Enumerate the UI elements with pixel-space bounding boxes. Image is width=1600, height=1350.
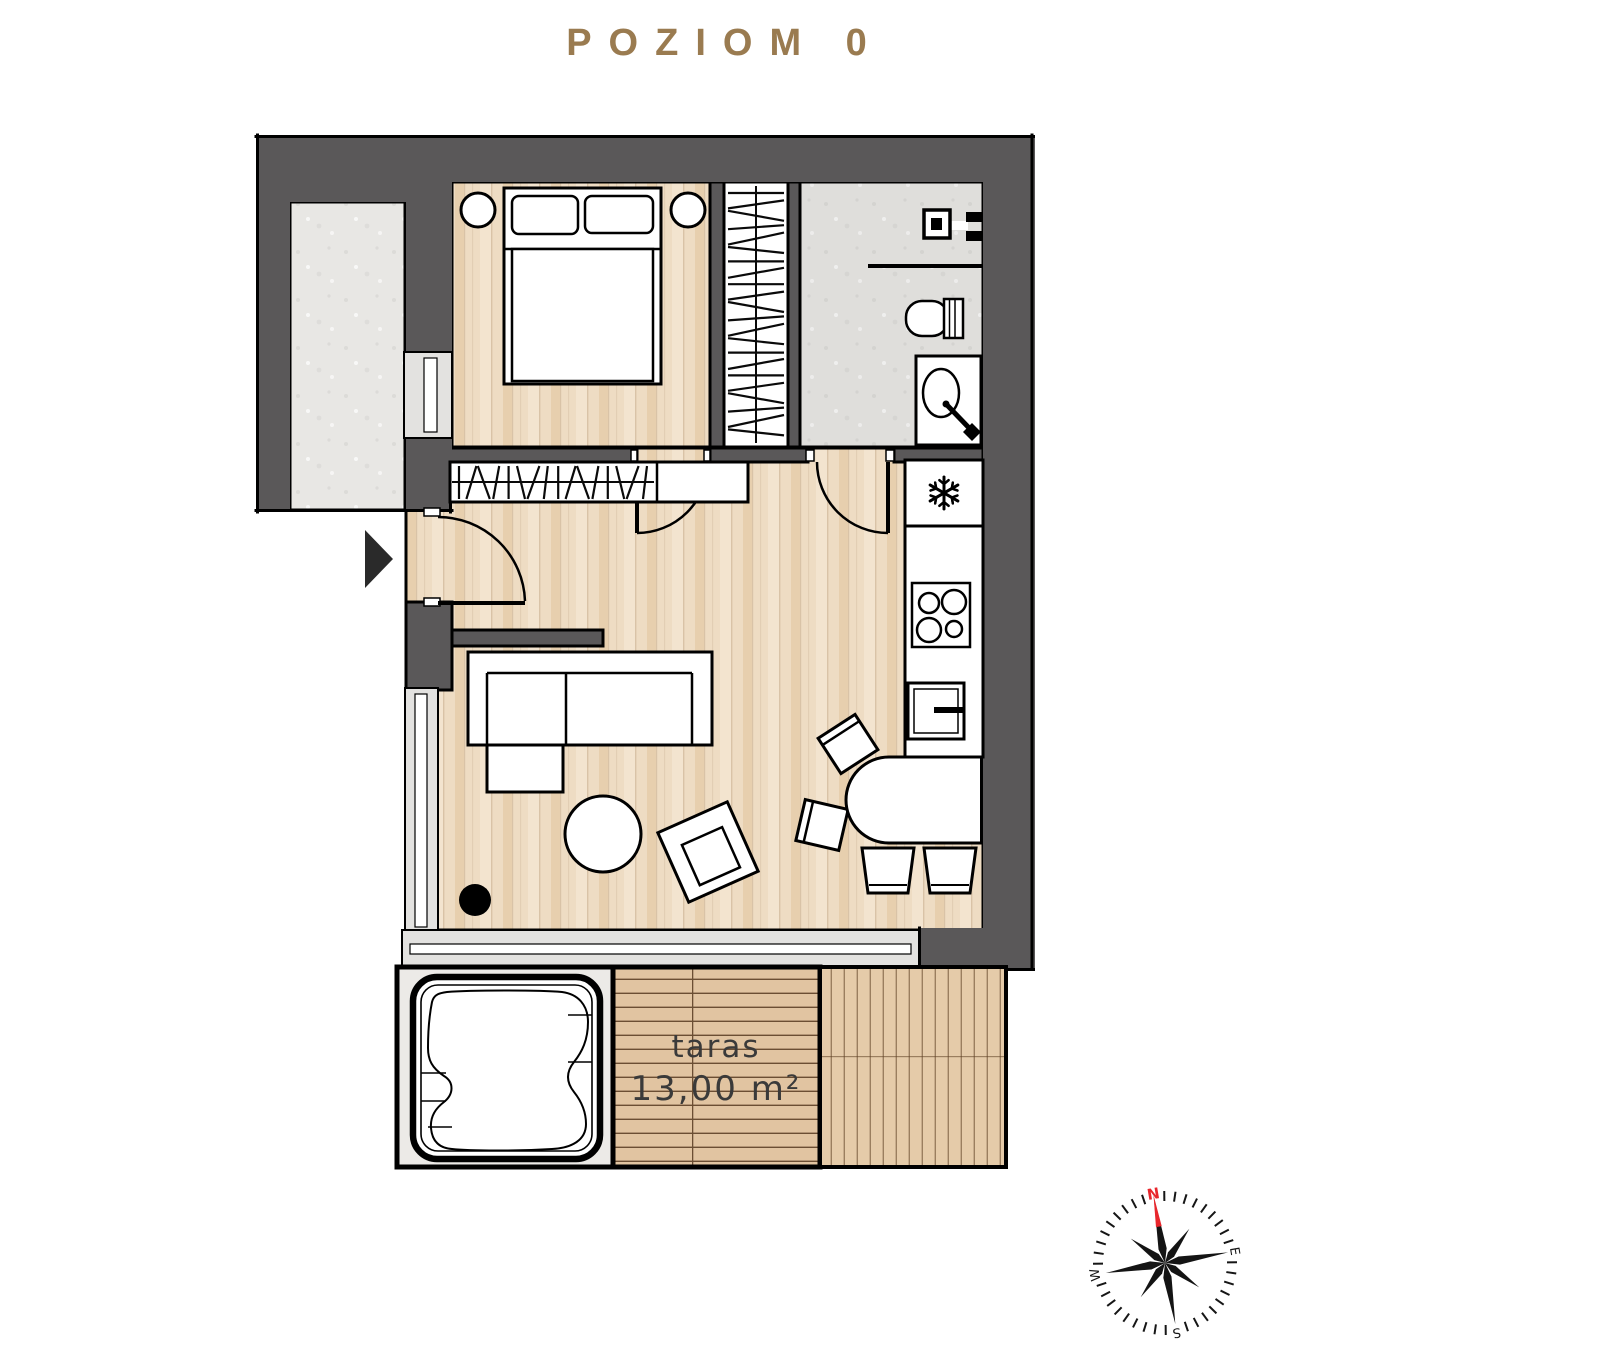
- terrace: taras 13,00 m²: [397, 967, 1006, 1167]
- south-window: [402, 930, 919, 967]
- kitchen-sink: [908, 683, 964, 739]
- shower-pipe: [950, 221, 968, 230]
- dining-chair: [924, 848, 976, 893]
- door-jamb: [886, 450, 894, 461]
- compass-east-label: E: [1226, 1246, 1242, 1257]
- door-jamb: [424, 598, 440, 606]
- shower-arm: [966, 231, 982, 241]
- terrace-deck: [613, 967, 820, 1167]
- sink-vanity: [916, 356, 981, 445]
- pillow: [585, 196, 653, 233]
- toilet: [906, 299, 963, 338]
- side-deck: [820, 967, 1006, 1167]
- dining-chair: [796, 800, 848, 851]
- kitchen-faucet: [934, 707, 964, 713]
- wall-closet-bathroom: [788, 182, 800, 447]
- wall-northwest-corner: [256, 135, 408, 202]
- shower-valve-core: [931, 218, 942, 230]
- wall-east: [983, 135, 1035, 971]
- bed-mattress: [512, 249, 653, 381]
- door-jamb: [806, 450, 814, 461]
- terrace-area: 13,00 m²: [631, 1069, 802, 1109]
- door-jamb: [424, 508, 440, 516]
- stove: [912, 583, 970, 647]
- pillow: [512, 196, 578, 234]
- shower-arm: [966, 212, 982, 222]
- entrance-arrow-icon: [365, 530, 393, 588]
- patio-concrete-floor: [290, 202, 405, 510]
- wall-entry-pier: [406, 602, 452, 690]
- hot-tub: [413, 977, 600, 1159]
- wall-southeast: [918, 928, 1035, 971]
- door-jamb: [631, 450, 637, 461]
- nightstand: [461, 193, 495, 227]
- wall-bedroom-closet: [710, 182, 724, 447]
- floor-plan-canvas: taras 13,00 m² N E S W: [0, 0, 1600, 1350]
- compass-south-label: S: [1171, 1324, 1182, 1340]
- sofa-chaise: [487, 745, 563, 792]
- kitchen: [905, 460, 983, 757]
- compass-north-label: N: [1146, 1184, 1161, 1204]
- wall-patio-bedroom: [406, 135, 452, 512]
- compass-rose-icon: N E S W: [1075, 1172, 1254, 1350]
- compass-west-label: W: [1087, 1267, 1104, 1282]
- door-jamb: [704, 450, 710, 461]
- coffee-table: [565, 796, 641, 872]
- stove-flue-dot: [459, 884, 491, 916]
- west-window: [405, 688, 438, 933]
- wall-hall-living: [450, 630, 603, 646]
- dining-table: [846, 757, 982, 843]
- terrace-label: taras: [671, 1029, 760, 1065]
- nightstand: [671, 193, 705, 227]
- wall-hall-band-mid: [710, 448, 808, 462]
- bedroom-window: [404, 352, 452, 438]
- floor-plan-page: POZIOM 0: [0, 0, 1600, 1350]
- dining-chair: [862, 848, 914, 893]
